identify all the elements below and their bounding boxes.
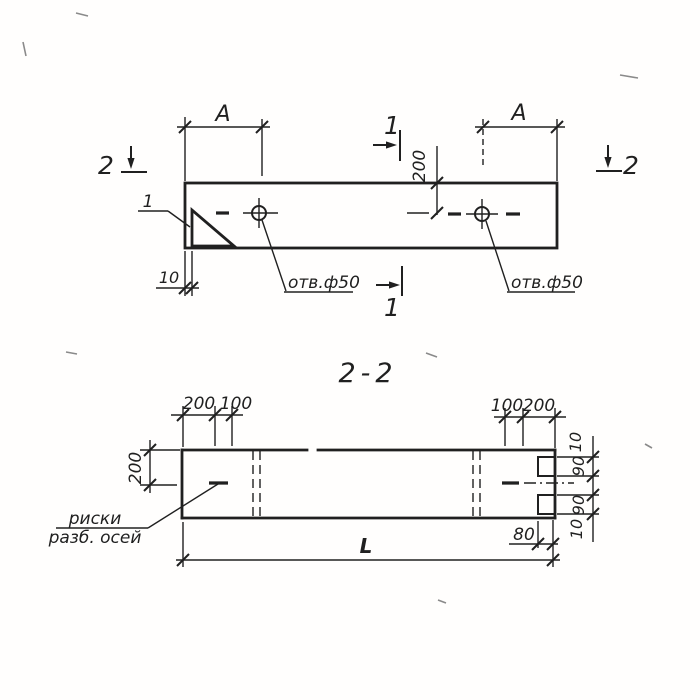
dim-a-left: A (177, 102, 270, 181)
scan-speckle (23, 42, 26, 56)
hole-label-left-text: отв.ф50 (288, 273, 360, 293)
dim-a-left-value: A (213, 102, 230, 127)
detail-callout-label: 1 (143, 192, 154, 212)
edge-stack-value-2: 90 (569, 495, 588, 515)
dim-a-right: A (475, 101, 565, 181)
scan-speckle (76, 13, 88, 16)
hole-label-right-text: отв.ф50 (511, 273, 583, 293)
section-mark-1-bottom-label: 1 (384, 293, 400, 322)
dim-top-left-1-value: 200 (183, 394, 215, 414)
notch-upper (538, 457, 555, 476)
dim-200-height: 200 (126, 440, 180, 493)
dim-top-right-1-value: 100 (491, 396, 523, 416)
section-mark-1-top: 1 (373, 111, 400, 161)
dim-80-value: 80 (513, 525, 535, 545)
scan-speckle (620, 75, 638, 78)
section-mark-2-left: 2 (98, 146, 147, 180)
section-arrow-head (604, 157, 611, 168)
dims-top-left: 200 100 (171, 394, 252, 447)
axis-note-line1: риски (68, 509, 122, 529)
edge-stack-value-1: 90 (569, 456, 588, 476)
dim-length: L (176, 522, 560, 567)
leader-line (486, 221, 509, 291)
end-notches (538, 457, 555, 514)
technical-drawing: 1 2 2 1 1 (0, 0, 700, 700)
axis-note-line2: разб. осей (48, 528, 142, 548)
dim-10-plan: 10 (156, 251, 199, 296)
dim-top-left-2-value: 100 (220, 394, 252, 414)
callout-leader-line (168, 211, 190, 227)
dim-height-value: 200 (126, 452, 146, 484)
dim-200-value: 200 (410, 150, 430, 182)
hidden-joint-lines (253, 451, 480, 517)
dim-a-right-value: A (509, 101, 526, 126)
scan-speckle (438, 600, 446, 603)
dims-top-right: 100 200 (491, 396, 566, 448)
beam-outline-plan (185, 183, 557, 248)
dim-10-value: 10 (159, 268, 179, 287)
leader-line (262, 220, 286, 291)
edge-stack-value-0: 10 (566, 432, 585, 452)
hole-label-right: отв.ф50 (486, 221, 583, 293)
hole-left (216, 198, 278, 228)
drawing-sheet: 1 2 2 1 1 (0, 0, 700, 700)
notch-lower (538, 495, 555, 514)
section-mark-1-top-label: 1 (384, 111, 400, 140)
section-mark-2-right: 2 (596, 145, 639, 180)
dims-edge-stack: 10 90 90 10 (557, 432, 599, 542)
section-arrow-head (386, 141, 397, 148)
corner-plate-detail (192, 210, 234, 246)
dim-200-plan: 200 (407, 146, 443, 219)
hole-label-left: отв.ф50 (262, 220, 360, 293)
scan-speckle (645, 444, 652, 448)
dim-length-value: L (360, 534, 373, 558)
scan-speckle (426, 353, 437, 357)
hole-right (448, 199, 520, 229)
section-view: 2-2 риски разб. (48, 358, 599, 567)
section-mark-1-bottom: 1 (376, 266, 402, 322)
scan-speckle (66, 352, 77, 354)
section-mark-2-right-label: 2 (623, 151, 639, 180)
beam-outline-section (182, 450, 555, 518)
dim-top-right-2-value: 200 (523, 396, 555, 416)
axis-note: риски разб. осей (48, 484, 218, 548)
section-mark-2-left-label: 2 (98, 151, 114, 180)
section-title: 2-2 (338, 358, 397, 389)
plan-view: 1 2 2 1 1 (98, 101, 639, 322)
detail-callout: 1 (138, 192, 190, 227)
section-arrow-head (127, 158, 134, 169)
edge-stack-value-3: 10 (567, 519, 586, 539)
section-arrow-head (389, 281, 400, 288)
